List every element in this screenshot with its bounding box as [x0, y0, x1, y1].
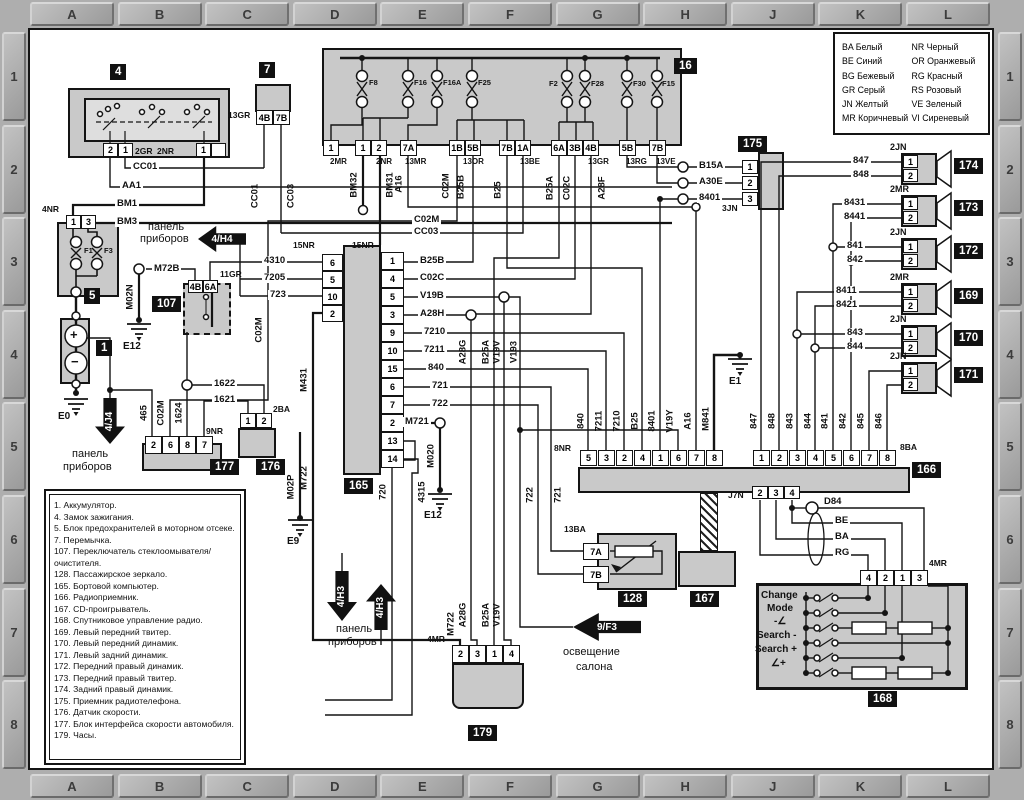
speaker-connector-label: 2MR	[890, 185, 909, 194]
label-843: 843	[845, 328, 865, 338]
frame-letter-k: K	[818, 774, 902, 798]
pin-3: 3	[598, 450, 615, 466]
label-4MR: 4MR	[929, 559, 947, 568]
label-M02P: M02P	[286, 475, 296, 500]
parts-list-item: 166. Радиоприемник.	[54, 592, 236, 604]
frame-letter-b: B	[118, 774, 202, 798]
label-7210: 7210	[422, 327, 447, 337]
pin-3: 3	[381, 306, 404, 324]
frame-number-3: 3	[2, 217, 26, 306]
label-C02C: C02C	[418, 273, 446, 283]
label--: -∠	[774, 617, 786, 627]
label-C02M: C02M	[156, 400, 166, 425]
label-приборов: приборов	[328, 637, 377, 648]
component-badge-165: 165	[344, 478, 373, 494]
frame-number-1: 1	[2, 32, 26, 121]
frame-number-2: 2	[2, 125, 26, 214]
label-B25B: B25B	[418, 256, 446, 266]
frame-letter-e: E	[380, 2, 464, 26]
frame-number-8: 8	[998, 680, 1022, 769]
frame-letter-j: J	[731, 774, 815, 798]
label-D84: D84	[822, 497, 843, 507]
cd-player-block	[678, 551, 736, 587]
pin-1: 1	[66, 215, 81, 229]
label-панель: панель	[72, 449, 108, 460]
frame-number-1: 1	[998, 32, 1022, 121]
label-B25A: B25A	[481, 603, 491, 627]
label-V19V: V19V	[492, 340, 502, 363]
label-освещение: освещение	[563, 647, 620, 658]
label-панель: панель	[336, 624, 372, 635]
label-M722: M722	[299, 466, 309, 490]
label-8401: 8401	[697, 193, 722, 203]
speaker-pin: 2	[903, 378, 918, 391]
label-4NR: 4NR	[42, 205, 59, 214]
pin-2: 2	[771, 450, 788, 466]
legend-entry: MR Коричневый	[842, 111, 912, 125]
label-M431: M431	[299, 368, 309, 392]
component-badge-5: 5	[84, 288, 100, 304]
fuse-label-F8: F8	[369, 79, 378, 87]
pin-3: 3	[81, 215, 96, 229]
label-BA: BA	[833, 532, 851, 542]
pin-4: 4	[860, 570, 877, 586]
frame-number-3: 3	[998, 217, 1022, 306]
parts-list-item: 172. Передний правый динамик.	[54, 661, 236, 673]
pin-4B: 4B	[256, 110, 273, 125]
label-722: 722	[525, 487, 535, 503]
label-Change: Change	[761, 591, 798, 601]
label-A28G: A28G	[458, 340, 468, 365]
arrow-label: 4/H4	[211, 234, 232, 245]
label-723: 723	[268, 290, 288, 300]
pin-7B: 7B	[273, 110, 290, 125]
label-841: 841	[820, 413, 830, 429]
speaker-pin: 1	[903, 285, 918, 298]
legend-entry: VI Сиреневый	[912, 111, 982, 125]
speaker-pin: 1	[903, 155, 918, 168]
speaker-connector-label: 2JN	[890, 143, 907, 152]
label-1622: 1622	[212, 379, 237, 389]
component-badge-167: 167	[690, 591, 719, 607]
fuse-label-F16: F16	[414, 79, 427, 87]
label-465: 465	[139, 405, 149, 421]
fuse-box-block	[322, 48, 682, 146]
pin-5: 5	[825, 450, 842, 466]
label-V19B: V19B	[418, 291, 446, 301]
frame-number-2: 2	[998, 125, 1022, 214]
label-7211: 7211	[594, 411, 604, 432]
pin-8: 8	[706, 450, 723, 466]
frame-letter-j: J	[731, 2, 815, 26]
pin-1: 1	[753, 450, 770, 466]
pin-4B: 4B	[188, 280, 203, 293]
label-9NR: 9NR	[206, 427, 223, 436]
legend-row: BE СинийOR Оранжевый	[842, 54, 981, 68]
speaker-pin: 2	[903, 169, 918, 182]
label-4310: 4310	[262, 256, 287, 266]
frame-letter-a: A	[30, 774, 114, 798]
label-A28H: A28H	[418, 309, 446, 319]
pin-7: 7	[381, 396, 404, 414]
label-M02N: M02N	[125, 284, 135, 309]
speaker-connector-label: 2JN	[890, 352, 907, 361]
pin-2: 2	[877, 570, 894, 586]
legend-entry: VE Зеленый	[912, 97, 982, 111]
frame-number-7: 7	[998, 588, 1022, 677]
frame-letter-f: F	[468, 774, 552, 798]
component-badge-179: 179	[468, 725, 497, 741]
frame-letter-h: H	[643, 2, 727, 26]
board-computer-block	[343, 245, 381, 475]
label-A16: A16	[683, 412, 693, 429]
component-badge-172: 172	[954, 243, 983, 259]
parts-list-item: 169. Левый передний твитер.	[54, 627, 236, 639]
pin-blank	[211, 143, 226, 157]
label-842: 842	[838, 413, 848, 429]
pin-1: 1	[486, 645, 503, 663]
legend-entry: BE Синий	[842, 54, 912, 68]
label-721: 721	[430, 381, 450, 391]
label-RG: RG	[833, 548, 851, 558]
label-2GR: 2GR	[135, 147, 152, 156]
parts-list-item: 5. Блок предохранителей в моторном отсек…	[54, 523, 236, 535]
label-847: 847	[851, 156, 871, 166]
pin-3: 3	[742, 192, 758, 206]
radio-block	[578, 467, 910, 493]
pin-5B: 5B	[619, 140, 636, 156]
pin-2: 2	[742, 176, 758, 190]
parts-list-item: 171. Левый задний динамик.	[54, 650, 236, 662]
label-J7N: J7N	[728, 491, 744, 500]
pin-1: 1	[742, 160, 758, 174]
legend-row: BA БелыйNR Черный	[842, 40, 981, 54]
label-4MR: 4MR	[427, 635, 445, 644]
label-15NR: 15NR	[352, 241, 374, 250]
label-13MR: 13MR	[405, 158, 426, 166]
legend-entry: GR Серый	[842, 83, 912, 97]
label-840: 840	[576, 413, 586, 429]
frame-letter-d: D	[293, 774, 377, 798]
label-приборов: приборов	[140, 234, 189, 245]
component-badge-7: 7	[259, 62, 275, 78]
label-13OR: 13OR	[463, 158, 484, 166]
label-846: 846	[874, 413, 884, 429]
legend-entry: OR Оранжевый	[912, 54, 982, 68]
parts-list-item: 174. Задний правый динамик.	[54, 684, 236, 696]
pin-5: 5	[580, 450, 597, 466]
frame-number-4: 4	[998, 310, 1022, 399]
frame-letter-f: F	[468, 2, 552, 26]
frame-letter-b: B	[118, 2, 202, 26]
label-843: 843	[785, 413, 795, 429]
pin-3: 3	[789, 450, 806, 466]
parts-list-item: 176. Датчик скорости.	[54, 707, 236, 719]
ignition-inner-block	[84, 98, 220, 142]
pin-6: 6	[843, 450, 860, 466]
label-V19Y: V19Y	[665, 409, 675, 432]
component-badge-171: 171	[954, 367, 983, 383]
label-Mode: Mode	[767, 604, 793, 614]
parts-list-item: 179. Часы.	[54, 730, 236, 742]
speaker-connector-label: 2JN	[890, 315, 907, 324]
parts-list-item: 1. Аккумулятор.	[54, 500, 236, 512]
parts-list-item: 4. Замок зажигания.	[54, 512, 236, 524]
label-7210: 7210	[612, 410, 622, 431]
pin-6A: 6A	[203, 280, 218, 293]
pin-1: 1	[240, 413, 256, 428]
label-BM3: BM3	[115, 217, 139, 227]
pin-7A: 7A	[400, 140, 417, 156]
arrow-label: 9/F3	[597, 622, 617, 633]
frame-number-5: 5	[998, 402, 1022, 491]
parts-list-item: 177. Блок интерфейса скорости автомобиля…	[54, 719, 236, 731]
label-841: 841	[845, 241, 865, 251]
engine-fuse-box-block	[57, 222, 119, 297]
label-847: 847	[749, 413, 759, 429]
legend-entry: RG Красный	[912, 69, 982, 83]
ground-label-E9: E9	[287, 537, 299, 547]
label-BM32: BM32	[349, 172, 359, 197]
label-13BE: 13BE	[520, 158, 540, 166]
label-+: ∠+	[771, 659, 786, 669]
label-CC03: CC03	[286, 184, 296, 208]
pin-2: 2	[752, 486, 768, 499]
frame-letter-e: E	[380, 774, 464, 798]
pin-10: 10	[322, 288, 343, 305]
pin-7B: 7B	[583, 566, 609, 583]
pin-6: 6	[162, 436, 179, 454]
pin-15: 15	[381, 360, 404, 378]
label-V19V: V19V	[492, 603, 502, 626]
frame-number-6: 6	[998, 495, 1022, 584]
label-13VE: 13VE	[656, 158, 676, 166]
label-2MR: 2MR	[330, 158, 347, 166]
legend-row: GR СерыйRS Розовый	[842, 83, 981, 97]
frame-letter-l: L	[906, 2, 990, 26]
label-салона: салона	[576, 662, 612, 673]
legend-row: MR КоричневыйVI Сиреневый	[842, 111, 981, 125]
wire-color-legend: BA БелыйNR ЧерныйBE СинийOR ОранжевыйBG …	[833, 32, 990, 135]
label-845: 845	[856, 413, 866, 429]
parts-list-item: 170. Левый передний динамик.	[54, 638, 236, 650]
label-M721: M721	[403, 417, 431, 427]
frame-letter-a: A	[30, 2, 114, 26]
label-M72B: M72B	[152, 264, 181, 274]
frame-letter-c: C	[205, 2, 289, 26]
label-B25A: B25A	[545, 176, 555, 200]
label-A16: A16	[394, 175, 404, 192]
label-13GR: 13GR	[588, 158, 609, 166]
parts-list-item: 168. Спутниковое управление радио.	[54, 615, 236, 627]
label-1621: 1621	[212, 395, 237, 405]
label-844: 844	[803, 413, 813, 429]
label-3JN: 3JN	[722, 204, 738, 213]
speaker-pin: 2	[903, 254, 918, 267]
component-badge-170: 170	[954, 330, 983, 346]
frame-letter-c: C	[205, 774, 289, 798]
fuse-label-F1: F1	[84, 247, 93, 255]
pin-7: 7	[861, 450, 878, 466]
label-+: +	[70, 328, 78, 341]
parts-list-item: 7. Перемычка.	[54, 535, 236, 547]
shielded-cable	[700, 493, 718, 551]
parts-list-item: 165. Бортовой компьютер.	[54, 581, 236, 593]
frame-letter-l: L	[906, 774, 990, 798]
label-8BA: 8BA	[900, 443, 917, 452]
arrow-label: 4/H3	[337, 585, 348, 606]
pin-1: 1	[894, 570, 911, 586]
pin-1: 1	[652, 450, 669, 466]
pin-1A: 1A	[515, 140, 531, 156]
pin-1B: 1B	[449, 140, 465, 156]
pin-5: 5	[381, 288, 404, 306]
label-8431: 8431	[842, 198, 867, 208]
component-badge-16: 16	[674, 58, 697, 74]
label-A28G: A28G	[458, 603, 468, 628]
legend-entry: NR Черный	[912, 40, 982, 54]
label-7205: 7205	[262, 273, 287, 283]
component-badge-4: 4	[110, 64, 126, 80]
ground-label-E0: E0	[58, 412, 70, 422]
component-badge-1: 1	[96, 340, 112, 356]
label-848: 848	[767, 413, 777, 429]
jumper-block	[255, 84, 291, 112]
label-V193: V193	[509, 341, 519, 363]
label-BE: BE	[833, 516, 850, 526]
pin-2: 2	[371, 140, 387, 156]
pin-3: 3	[768, 486, 784, 499]
label-4315: 4315	[417, 481, 427, 502]
pin-8: 8	[179, 436, 196, 454]
fuse-label-F3: F3	[104, 247, 113, 255]
component-badge-107: 107	[152, 296, 181, 312]
label-B25A: B25A	[481, 340, 491, 364]
label-B15A: B15A	[697, 161, 725, 171]
frame-number-8: 8	[2, 680, 26, 769]
speaker-pin: 2	[903, 211, 918, 224]
speaker-pin: 2	[903, 299, 918, 312]
label-8401: 8401	[647, 410, 657, 431]
wiring-diagram-page: AABBCCDDEEFFGGHHJJKKLL1122334455667788 B…	[0, 0, 1024, 800]
label-8441: 8441	[842, 212, 867, 222]
fuse-label-F25: F25	[478, 79, 491, 87]
label-C02M: C02M	[254, 317, 264, 342]
legend-entry: RS Розовый	[912, 83, 982, 97]
label-приборов: приборов	[63, 462, 112, 473]
label-CC03: CC03	[412, 227, 440, 237]
component-badge-175: 175	[738, 136, 767, 152]
pin-3: 3	[469, 645, 486, 663]
arrow-label: 4/H3	[376, 596, 387, 617]
pin-4: 4	[503, 645, 520, 663]
frame-number-6: 6	[2, 495, 26, 584]
ground-label-E12: E12	[123, 342, 141, 352]
radiophone-block	[758, 152, 784, 210]
pin-7B: 7B	[499, 140, 515, 156]
pin-2: 2	[145, 436, 162, 454]
legend-row: JN ЖелтыйVE Зеленый	[842, 97, 981, 111]
pin-2: 2	[381, 414, 404, 432]
label-Search+: Search +	[755, 645, 797, 655]
label-13BA: 13BA	[564, 525, 586, 534]
label-A28F: A28F	[597, 176, 607, 199]
pin-1: 1	[355, 140, 371, 156]
label-2NR: 2NR	[157, 147, 174, 156]
frame-letter-g: G	[556, 774, 640, 798]
pin-1: 1	[118, 143, 133, 157]
label-: −	[71, 355, 79, 368]
pin-8: 8	[879, 450, 896, 466]
frame-letter-h: H	[643, 774, 727, 798]
label-AA1: AA1	[120, 181, 143, 191]
pin-4: 4	[784, 486, 800, 499]
pin-2: 2	[256, 413, 272, 428]
speaker-connector-label: 2MR	[890, 273, 909, 282]
frame-number-5: 5	[2, 402, 26, 491]
label-720: 720	[378, 484, 388, 500]
component-badge-168: 168	[868, 691, 897, 707]
pin-6A: 6A	[551, 140, 567, 156]
label-M722: M722	[446, 612, 456, 636]
label-C02C: C02C	[562, 176, 572, 200]
label-15NR: 15NR	[293, 241, 315, 250]
label-840: 840	[426, 363, 446, 373]
speed-sensor-block	[238, 428, 276, 458]
component-badge-166: 166	[912, 462, 941, 478]
pin-7: 7	[688, 450, 705, 466]
component-badge-173: 173	[954, 200, 983, 216]
pin-4: 4	[634, 450, 651, 466]
label-2BA: 2BA	[273, 405, 290, 414]
pin-4B: 4B	[583, 140, 599, 156]
ground-label-E1: E1	[729, 377, 741, 387]
parts-list-item: 107. Переключатель стеклоомывателя/очист…	[54, 546, 236, 569]
label-Search-: Search -	[757, 631, 796, 641]
label-8421: 8421	[834, 300, 859, 310]
pin-6: 6	[381, 378, 404, 396]
fuse-label-F15: F15	[662, 80, 675, 88]
label-2NR: 2NR	[376, 158, 392, 166]
label-A30E: A30E	[697, 177, 725, 187]
frame-number-4: 4	[2, 310, 26, 399]
label-CC01: CC01	[131, 162, 159, 172]
pin-9: 9	[381, 324, 404, 342]
pin-6: 6	[670, 450, 687, 466]
component-badge-177: 177	[210, 459, 239, 475]
label-M841: M841	[701, 407, 711, 431]
legend-row: BG БежевыйRG Красный	[842, 69, 981, 83]
parts-list-item: 175. Приемник радиотелефона.	[54, 696, 236, 708]
pin-14: 14	[381, 450, 404, 468]
component-badge-128: 128	[618, 591, 647, 607]
frame-letter-g: G	[556, 2, 640, 26]
label-BM1: BM1	[115, 199, 139, 209]
label-7211: 7211	[422, 345, 447, 355]
frame-letter-k: K	[818, 2, 902, 26]
pin-7A: 7A	[583, 543, 609, 560]
pin-3: 3	[911, 570, 928, 586]
pin-3B: 3B	[567, 140, 583, 156]
legend-entry: BG Бежевый	[842, 69, 912, 83]
pin-6: 6	[322, 254, 343, 271]
label-B25: B25	[493, 181, 503, 198]
parts-list-item: 128. Пассажирское зеркало.	[54, 569, 236, 581]
pin-7: 7	[196, 436, 213, 454]
label-B25: B25	[630, 412, 640, 429]
fuse-label-F28: F28	[591, 80, 604, 88]
component-badge-174: 174	[954, 158, 983, 174]
